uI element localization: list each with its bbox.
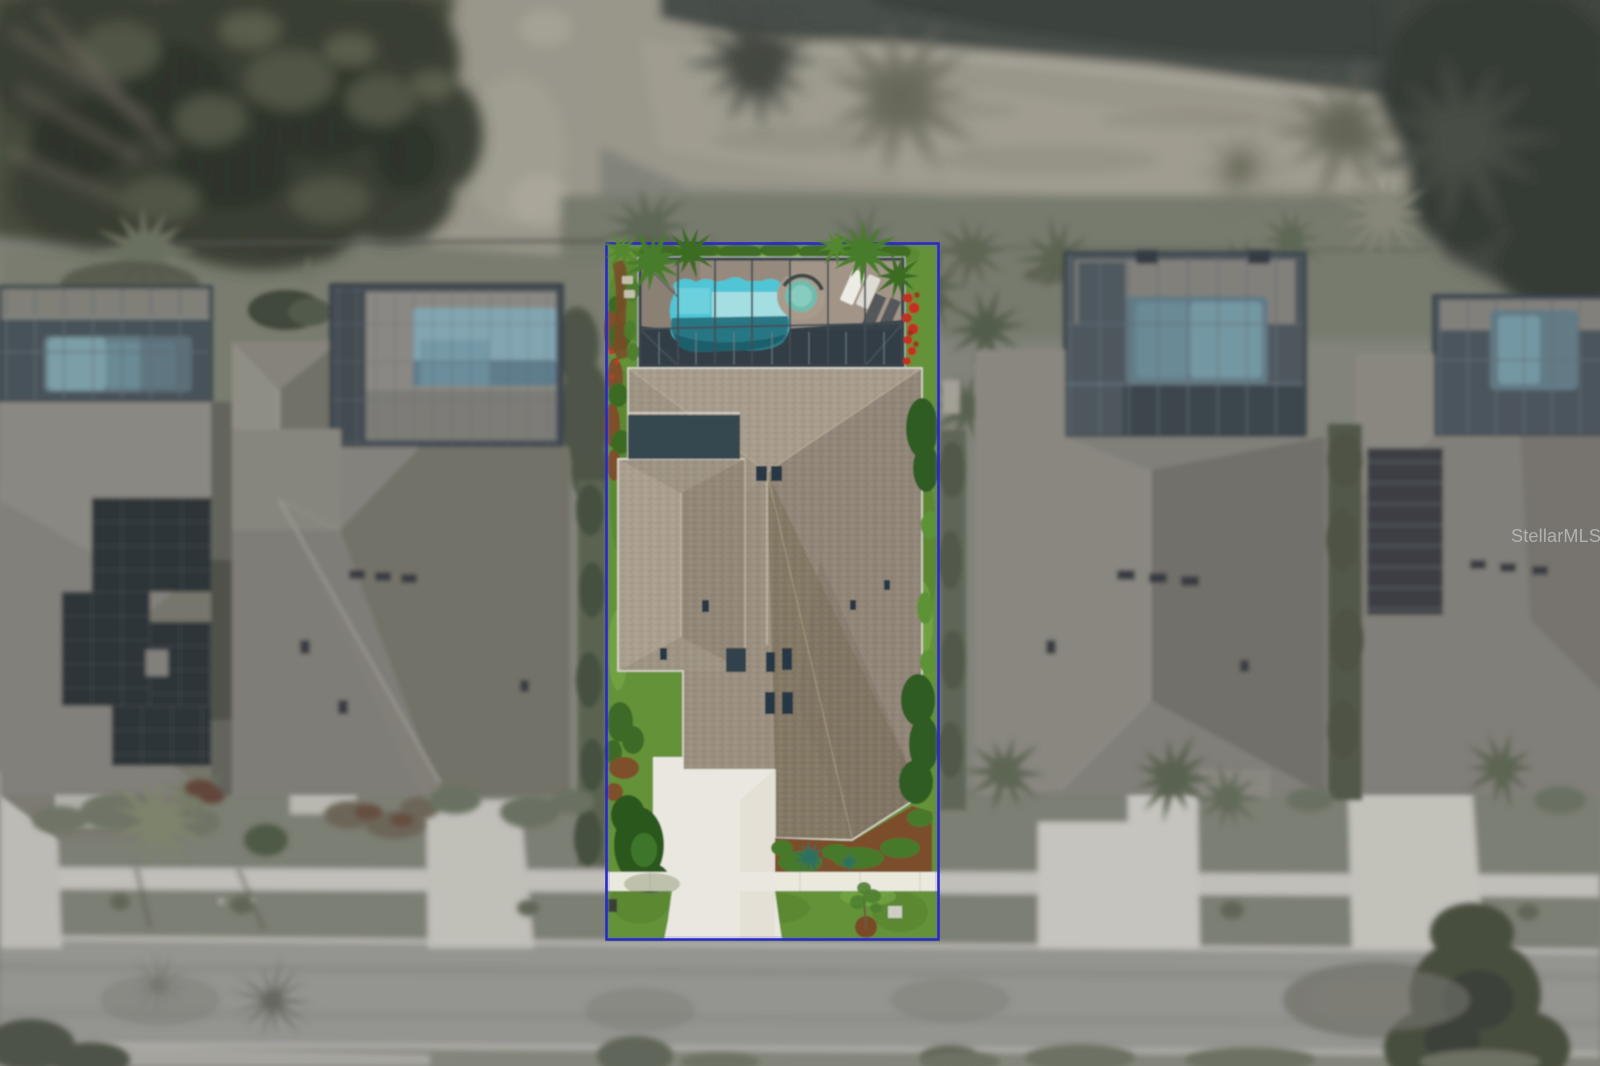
svg-text:StellarMLS: StellarMLS: [1511, 526, 1600, 546]
